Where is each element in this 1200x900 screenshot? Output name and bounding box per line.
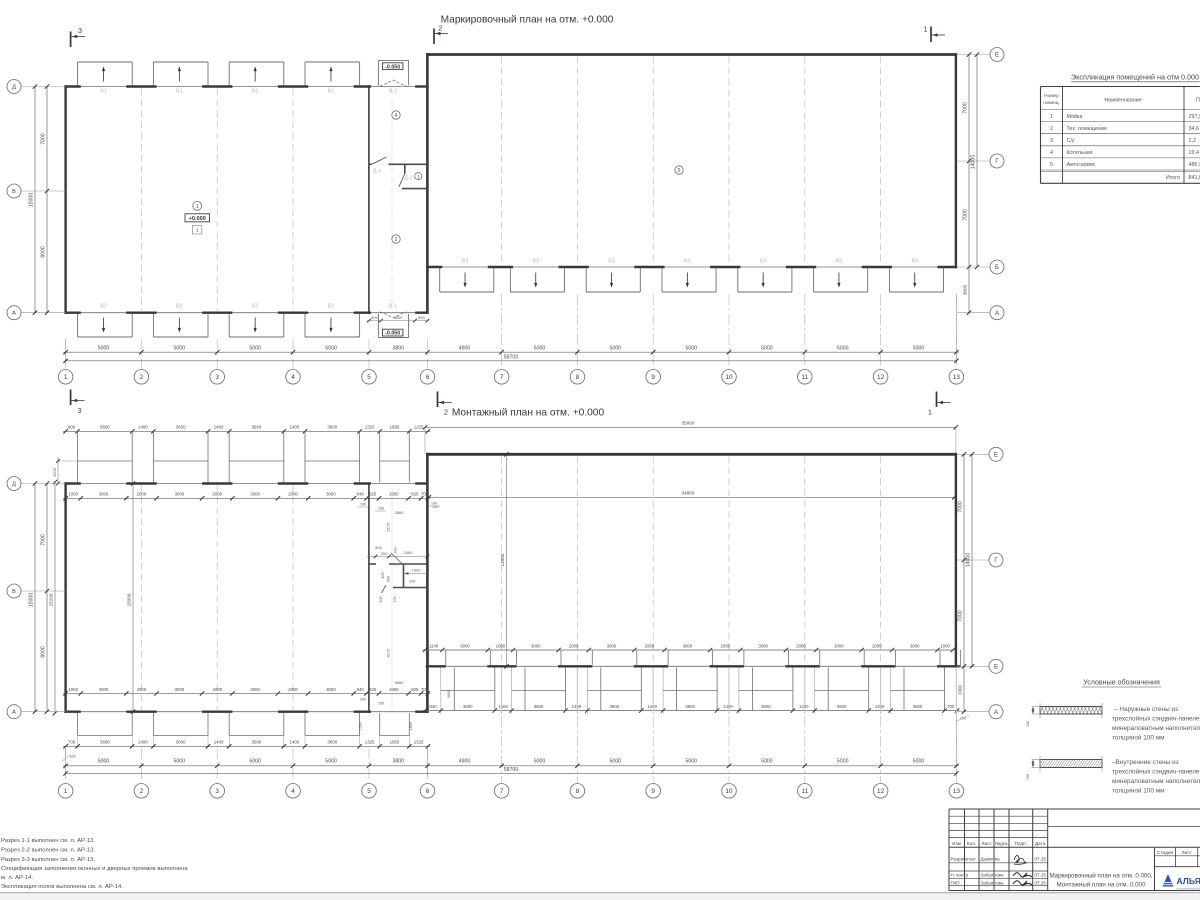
svg-text:1: 1	[64, 374, 68, 381]
svg-text:2000: 2000	[212, 492, 222, 497]
svg-text:Мойка: Мойка	[1067, 113, 1083, 120]
svg-text:07.25: 07.25	[1034, 857, 1046, 862]
svg-text:3600: 3600	[610, 704, 620, 709]
svg-text:15000: 15000	[29, 593, 35, 608]
svg-text:минераловатным наполнителем: минераловатным наполнителем	[1112, 725, 1200, 732]
svg-text:12: 12	[877, 788, 885, 795]
svg-text:5: 5	[367, 374, 371, 381]
svg-text:3000: 3000	[683, 643, 693, 648]
svg-text:1400: 1400	[875, 704, 885, 709]
svg-text:5000: 5000	[685, 345, 697, 351]
svg-text:8: 8	[576, 374, 580, 381]
svg-text:200: 200	[379, 596, 383, 602]
svg-text:В2: В2	[328, 304, 335, 310]
svg-text:Б: Б	[994, 664, 998, 670]
svg-text:1400: 1400	[138, 425, 148, 430]
svg-text:1: 1	[196, 204, 199, 210]
svg-text:400: 400	[381, 572, 385, 578]
svg-text:7000: 7000	[963, 102, 969, 114]
svg-text:825: 825	[411, 492, 419, 497]
svg-text:7000: 7000	[958, 610, 964, 622]
svg-text:5000: 5000	[610, 345, 622, 351]
svg-text:1660: 1660	[498, 704, 508, 709]
svg-text:3600: 3600	[913, 704, 923, 709]
svg-text:2: 2	[438, 24, 442, 33]
svg-text:5: 5	[1050, 162, 1053, 168]
svg-text:1500: 1500	[52, 467, 57, 477]
svg-text:5000: 5000	[174, 758, 186, 764]
svg-text:2000: 2000	[872, 643, 882, 648]
svg-text:2: 2	[140, 788, 144, 795]
svg-text:трехслойных сэндвич-панелей с: трехслойных сэндвич-панелей с	[1112, 715, 1200, 723]
svg-text:7000: 7000	[958, 501, 964, 513]
svg-text:5000: 5000	[685, 758, 697, 764]
svg-text:15200: 15200	[49, 593, 54, 606]
svg-text:Е: Е	[995, 53, 999, 59]
svg-text:2000: 2000	[645, 643, 655, 648]
svg-text:В-1: В-1	[389, 304, 397, 310]
svg-text:м. л. АР-14.: м. л. АР-14.	[1, 875, 33, 881]
svg-text:3000: 3000	[326, 687, 336, 692]
svg-text:3000: 3000	[99, 492, 109, 497]
svg-text:В1: В1	[252, 89, 259, 95]
svg-text:-0.050: -0.050	[385, 331, 400, 337]
svg-text:В-2: В-2	[389, 89, 397, 95]
svg-text:19,4: 19,4	[1189, 150, 1200, 156]
svg-text:825: 825	[369, 687, 377, 692]
svg-text:Площадь, м²: Площадь, м²	[1196, 98, 1200, 104]
svg-text:8125: 8125	[385, 648, 390, 658]
svg-text:34,6: 34,6	[1189, 126, 1200, 132]
svg-text:841,0: 841,0	[1189, 175, 1200, 181]
svg-text:3: 3	[417, 174, 420, 180]
svg-text:2000: 2000	[137, 492, 147, 497]
svg-text:9: 9	[651, 788, 655, 795]
svg-text:1325: 1325	[365, 740, 375, 745]
svg-text:Спецификация заполнения оконны: Спецификация заполнения оконных и дверны…	[1, 866, 188, 872]
svg-text:58700: 58700	[504, 354, 519, 360]
svg-text:толщиной 100 мм: толщиной 100 мм	[1112, 734, 1164, 742]
svg-text:1000: 1000	[68, 687, 78, 692]
svg-text:3000: 3000	[394, 315, 404, 320]
svg-text:А: А	[12, 710, 16, 716]
svg-text:4: 4	[291, 374, 295, 381]
svg-text:5000: 5000	[761, 758, 773, 764]
svg-text:В2: В2	[252, 304, 259, 310]
svg-text:1225: 1225	[414, 425, 424, 430]
svg-text:Тех. помещение: Тех. помещение	[1067, 126, 1108, 132]
svg-text:1325: 1325	[365, 425, 375, 430]
svg-text:Е: Е	[994, 452, 998, 458]
svg-text:5000: 5000	[174, 345, 186, 351]
svg-text:4900: 4900	[459, 758, 471, 764]
svg-text:4: 4	[291, 788, 295, 795]
svg-text:5000: 5000	[913, 345, 925, 351]
svg-text:12: 12	[877, 374, 885, 381]
svg-text:1400: 1400	[214, 425, 224, 430]
svg-text:1140: 1140	[429, 643, 439, 648]
svg-text:Дымкова: Дымкова	[981, 857, 1001, 862]
svg-text:2000: 2000	[796, 643, 806, 648]
svg-text:АЛЬЯНС: АЛЬЯНС	[1177, 876, 1200, 886]
svg-text:Монтажный план на отм. +0.000: Монтажный план на отм. +0.000	[452, 408, 605, 419]
svg-text:Экспликация полов выполнена см: Экспликация полов выполнена см. л. АР-14…	[1, 884, 123, 890]
svg-text:7000: 7000	[963, 209, 969, 221]
svg-text:1400: 1400	[290, 425, 300, 430]
svg-text:Наименование: Наименование	[1104, 98, 1141, 104]
svg-text:2000: 2000	[288, 687, 298, 692]
svg-text:5000: 5000	[249, 345, 261, 351]
svg-text:14000: 14000	[971, 155, 977, 170]
svg-text:3600: 3600	[761, 704, 771, 709]
svg-text:5000: 5000	[325, 758, 337, 764]
svg-text:160: 160	[360, 698, 366, 702]
svg-text:4900: 4900	[459, 345, 471, 351]
svg-text:2000: 2000	[288, 492, 298, 497]
svg-text:14000: 14000	[500, 553, 505, 566]
svg-text:Н. контр: Н. контр	[951, 873, 969, 878]
svg-text:900: 900	[386, 576, 390, 582]
svg-text:3600: 3600	[327, 740, 337, 745]
svg-text:Экспликация помещений на отм 0: Экспликация помещений на отм 0.000	[1071, 73, 1199, 82]
svg-text:1: 1	[923, 25, 927, 34]
svg-text:Дата: Дата	[1035, 841, 1046, 846]
svg-text:1400: 1400	[647, 704, 657, 709]
svg-text:В2: В2	[100, 304, 107, 310]
svg-text:1: 1	[928, 408, 932, 417]
svg-text:В3: В3	[836, 259, 843, 265]
svg-text:35000: 35000	[682, 421, 695, 426]
svg-text:7000: 7000	[41, 534, 47, 546]
svg-text:840: 840	[429, 704, 437, 709]
svg-text:1000: 1000	[940, 643, 950, 648]
svg-text:100: 100	[431, 502, 437, 506]
svg-text:11: 11	[801, 788, 808, 795]
svg-text:700: 700	[421, 687, 429, 692]
svg-text:Маркировочный план на отм. +0.: Маркировочный план на отм. +0.000	[441, 15, 614, 26]
svg-text:5000: 5000	[837, 345, 849, 351]
svg-text:Разрез 2-2 выполнен см. л. АР-: Разрез 2-2 выполнен см. л. АР-13.	[1, 847, 95, 853]
svg-text:Лист: Лист	[1181, 850, 1192, 856]
svg-text:3600: 3600	[837, 704, 847, 709]
svg-text:1325: 1325	[414, 740, 424, 745]
svg-text:А: А	[12, 311, 16, 317]
svg-text:2: 2	[1050, 126, 1053, 132]
svg-text:13: 13	[953, 788, 961, 795]
svg-text:1500: 1500	[412, 568, 422, 573]
svg-text:толщиной 100 мм: толщиной 100 мм	[1112, 787, 1164, 795]
svg-text:Монтажный план на отм. 0.000: Монтажный план на отм. 0.000	[1057, 882, 1146, 889]
svg-text:10: 10	[725, 788, 733, 795]
svg-text:3000: 3000	[834, 643, 844, 648]
svg-text:Д: Д	[12, 482, 16, 488]
svg-text:13: 13	[953, 374, 961, 381]
svg-text:3860: 3860	[395, 680, 405, 685]
svg-text:Разработал: Разработал	[951, 857, 976, 862]
svg-text:1660: 1660	[496, 643, 506, 648]
svg-text:3000: 3000	[99, 687, 109, 692]
svg-text:3000: 3000	[326, 492, 336, 497]
svg-text:1400: 1400	[214, 740, 224, 745]
svg-text:3000: 3000	[175, 492, 185, 497]
svg-text:3000: 3000	[758, 643, 768, 648]
svg-text:3000: 3000	[447, 690, 451, 698]
svg-text:В3: В3	[911, 259, 918, 265]
svg-text:100: 100	[360, 503, 366, 507]
svg-text:В1: В1	[100, 89, 107, 95]
svg-text:В: В	[12, 189, 16, 195]
svg-text:ГИП: ГИП	[951, 880, 960, 885]
svg-text:3600: 3600	[100, 425, 110, 430]
svg-text:5000: 5000	[325, 345, 337, 351]
svg-text:840: 840	[356, 492, 364, 497]
svg-text:А: А	[995, 311, 999, 317]
svg-text:500: 500	[375, 545, 382, 550]
svg-text:Условные обозначения: Условные обозначения	[1083, 679, 1160, 687]
svg-text:3600: 3600	[534, 704, 544, 709]
svg-text:100: 100	[1026, 721, 1030, 727]
svg-text:Стадия: Стадия	[1157, 850, 1174, 856]
svg-text:300: 300	[381, 551, 388, 556]
svg-text:15000: 15000	[29, 193, 35, 208]
svg-text:+0.000: +0.000	[189, 216, 206, 222]
svg-text:100: 100	[432, 505, 438, 509]
svg-text:3: 3	[77, 406, 81, 415]
svg-text:2,2: 2,2	[1189, 138, 1197, 144]
svg-text:Автосервис: Автосервис	[1067, 162, 1096, 168]
svg-text:10: 10	[725, 374, 733, 381]
svg-text:100: 100	[69, 755, 75, 759]
svg-text:4: 4	[395, 113, 398, 119]
svg-text:2460: 2460	[404, 550, 414, 555]
svg-text:1000: 1000	[68, 492, 78, 497]
svg-text:В: В	[12, 589, 16, 595]
svg-text:3000: 3000	[910, 643, 920, 648]
svg-text:1950: 1950	[389, 492, 399, 497]
svg-text:Д-3: Д-3	[404, 176, 412, 182]
svg-text:58700: 58700	[504, 767, 519, 773]
svg-text:1400: 1400	[290, 740, 300, 745]
svg-text:строительная группа: строительная группа	[1177, 886, 1200, 890]
svg-text:5000: 5000	[913, 758, 925, 764]
svg-text:34800: 34800	[682, 491, 695, 496]
svg-text:3000: 3000	[175, 687, 185, 692]
svg-text:2: 2	[140, 374, 144, 381]
svg-text:3800: 3800	[392, 345, 404, 351]
svg-text:3000: 3000	[250, 492, 260, 497]
svg-text:5000: 5000	[98, 758, 110, 764]
svg-text:1: 1	[1050, 114, 1053, 120]
svg-text:5000: 5000	[534, 345, 546, 351]
svg-text:2000: 2000	[720, 643, 730, 648]
svg-text:3600: 3600	[252, 425, 262, 430]
svg-text:3860: 3860	[395, 510, 405, 515]
svg-text:минераловатным наполнителем: минераловатным наполнителем	[1112, 778, 1200, 785]
svg-text:9: 9	[651, 374, 655, 381]
svg-text:В3: В3	[684, 259, 691, 265]
svg-text:3600: 3600	[100, 740, 110, 745]
svg-text:Котельная: Котельная	[1067, 150, 1093, 156]
svg-text:3600: 3600	[252, 740, 262, 745]
svg-text:А: А	[994, 710, 998, 716]
svg-text:Забьялова: Забьялова	[981, 873, 1005, 878]
svg-text:3: 3	[78, 26, 82, 35]
svg-text:трехслойных сэндвич-панелей с: трехслойных сэндвич-панелей с	[1112, 768, 1200, 776]
svg-text:Разрез 1-1 выполнен см. л. АР-: Разрез 1-1 выполнен см. л. АР-13.	[1, 838, 95, 844]
svg-text:Лист: Лист	[981, 841, 992, 846]
svg-text:1600: 1600	[409, 722, 413, 730]
svg-text:3000: 3000	[250, 687, 260, 692]
svg-text:В1: В1	[328, 89, 335, 95]
svg-text:1500: 1500	[359, 722, 363, 730]
svg-text:5000: 5000	[837, 758, 849, 764]
svg-text:Б: Б	[995, 265, 999, 271]
svg-text:4: 4	[1050, 150, 1053, 156]
svg-text:2000: 2000	[137, 687, 147, 692]
svg-text:5000: 5000	[761, 345, 773, 351]
svg-text:3600: 3600	[327, 425, 337, 430]
svg-text:07.25: 07.25	[1034, 873, 1046, 878]
svg-text:В3: В3	[608, 259, 615, 265]
svg-text:100: 100	[378, 702, 384, 706]
svg-text:7: 7	[500, 788, 504, 795]
svg-text:1400: 1400	[723, 704, 733, 709]
svg-text:11: 11	[801, 374, 808, 381]
svg-text:825: 825	[369, 492, 377, 497]
svg-text:Разрез 3-3 выполнен см. л. АР-: Разрез 3-3 выполнен см. л. АР-13.	[1, 857, 95, 863]
svg-text:В1: В1	[176, 89, 183, 95]
svg-text:Забьялова: Забьялова	[981, 880, 1005, 885]
svg-text:Изм: Изм	[952, 841, 961, 846]
svg-text:5: 5	[367, 788, 371, 795]
svg-text:– Наружные стены из: – Наружные стены из	[1114, 706, 1178, 713]
svg-text:7000: 7000	[41, 133, 47, 145]
svg-text:В3: В3	[532, 259, 539, 265]
svg-text:5: 5	[678, 168, 681, 174]
svg-text:5000: 5000	[534, 758, 546, 764]
svg-text:1950: 1950	[390, 740, 400, 745]
svg-text:Д-4: Д-4	[373, 169, 381, 175]
svg-text:2000: 2000	[212, 687, 222, 692]
svg-text:100: 100	[1026, 774, 1030, 780]
svg-text:5000: 5000	[98, 345, 110, 351]
svg-text:3: 3	[1050, 138, 1053, 144]
svg-text:5000: 5000	[249, 758, 261, 764]
svg-text:800: 800	[68, 425, 76, 430]
svg-text:–Внутренние стены из: –Внутренние стены из	[1112, 759, 1179, 766]
svg-text:1950: 1950	[390, 425, 400, 430]
svg-text:7: 7	[500, 374, 504, 381]
svg-text:2000: 2000	[569, 643, 579, 648]
svg-text:3300: 3300	[958, 685, 963, 695]
svg-text:8000: 8000	[41, 646, 47, 658]
svg-text:С/у: С/у	[1067, 138, 1075, 144]
svg-text:800: 800	[371, 315, 378, 320]
svg-text:1400: 1400	[138, 740, 148, 745]
svg-text:Маркировочный план на отм. 0.0: Маркировочный план на отм. 0.000,	[1049, 873, 1152, 880]
svg-text:15000: 15000	[127, 593, 132, 606]
svg-text:3: 3	[215, 374, 219, 381]
svg-text:1950: 1950	[389, 687, 399, 692]
svg-text:Подп.: Подп.	[1015, 841, 1027, 846]
svg-text:2: 2	[395, 237, 398, 243]
svg-text:1: 1	[196, 228, 199, 234]
svg-text:6: 6	[426, 374, 430, 381]
svg-text:Д: Д	[12, 85, 16, 91]
svg-text:160: 160	[378, 507, 384, 511]
svg-text:486,9: 486,9	[1189, 162, 1200, 168]
svg-text:1400: 1400	[799, 704, 809, 709]
svg-text:700: 700	[947, 704, 955, 709]
svg-text:100: 100	[393, 547, 397, 553]
svg-text:3000: 3000	[607, 643, 617, 648]
svg-text:297,9: 297,9	[1189, 114, 1200, 120]
svg-text:8: 8	[576, 788, 580, 795]
svg-text:3600: 3600	[176, 425, 186, 430]
svg-text:6: 6	[426, 788, 430, 795]
svg-text:Номер: Номер	[1044, 93, 1059, 99]
svg-text:№док: №док	[995, 841, 1008, 846]
svg-text:помещ.: помещ.	[1043, 101, 1060, 106]
svg-text:825: 825	[411, 687, 419, 692]
svg-text:800: 800	[418, 315, 425, 320]
svg-text:07.25: 07.25	[1034, 880, 1046, 885]
svg-text:2: 2	[444, 408, 448, 417]
svg-text:3800: 3800	[963, 284, 968, 295]
svg-text:В3: В3	[760, 259, 767, 265]
svg-text:100: 100	[409, 580, 415, 584]
svg-text:5000: 5000	[610, 758, 622, 764]
svg-text:5175: 5175	[385, 522, 390, 532]
svg-text:14000: 14000	[966, 553, 972, 568]
svg-text:Кол.: Кол.	[967, 841, 976, 846]
svg-text:840: 840	[356, 687, 364, 692]
svg-text:3600: 3600	[176, 740, 186, 745]
svg-text:8000: 8000	[41, 246, 47, 258]
svg-text:3600: 3600	[685, 704, 695, 709]
svg-text:-0.050: -0.050	[385, 64, 400, 70]
svg-text:700: 700	[68, 740, 76, 745]
svg-text:1: 1	[64, 788, 68, 795]
svg-text:Итого: Итого	[1166, 175, 1180, 181]
svg-text:100: 100	[393, 596, 397, 602]
svg-text:3: 3	[215, 788, 219, 795]
svg-text:3800: 3800	[392, 758, 404, 764]
svg-text:В2: В2	[176, 304, 183, 310]
svg-text:1400: 1400	[572, 704, 582, 709]
svg-text:3000: 3000	[460, 643, 470, 648]
svg-text:3000: 3000	[531, 643, 541, 648]
svg-text:3600: 3600	[463, 704, 473, 709]
svg-text:В3: В3	[462, 259, 469, 265]
